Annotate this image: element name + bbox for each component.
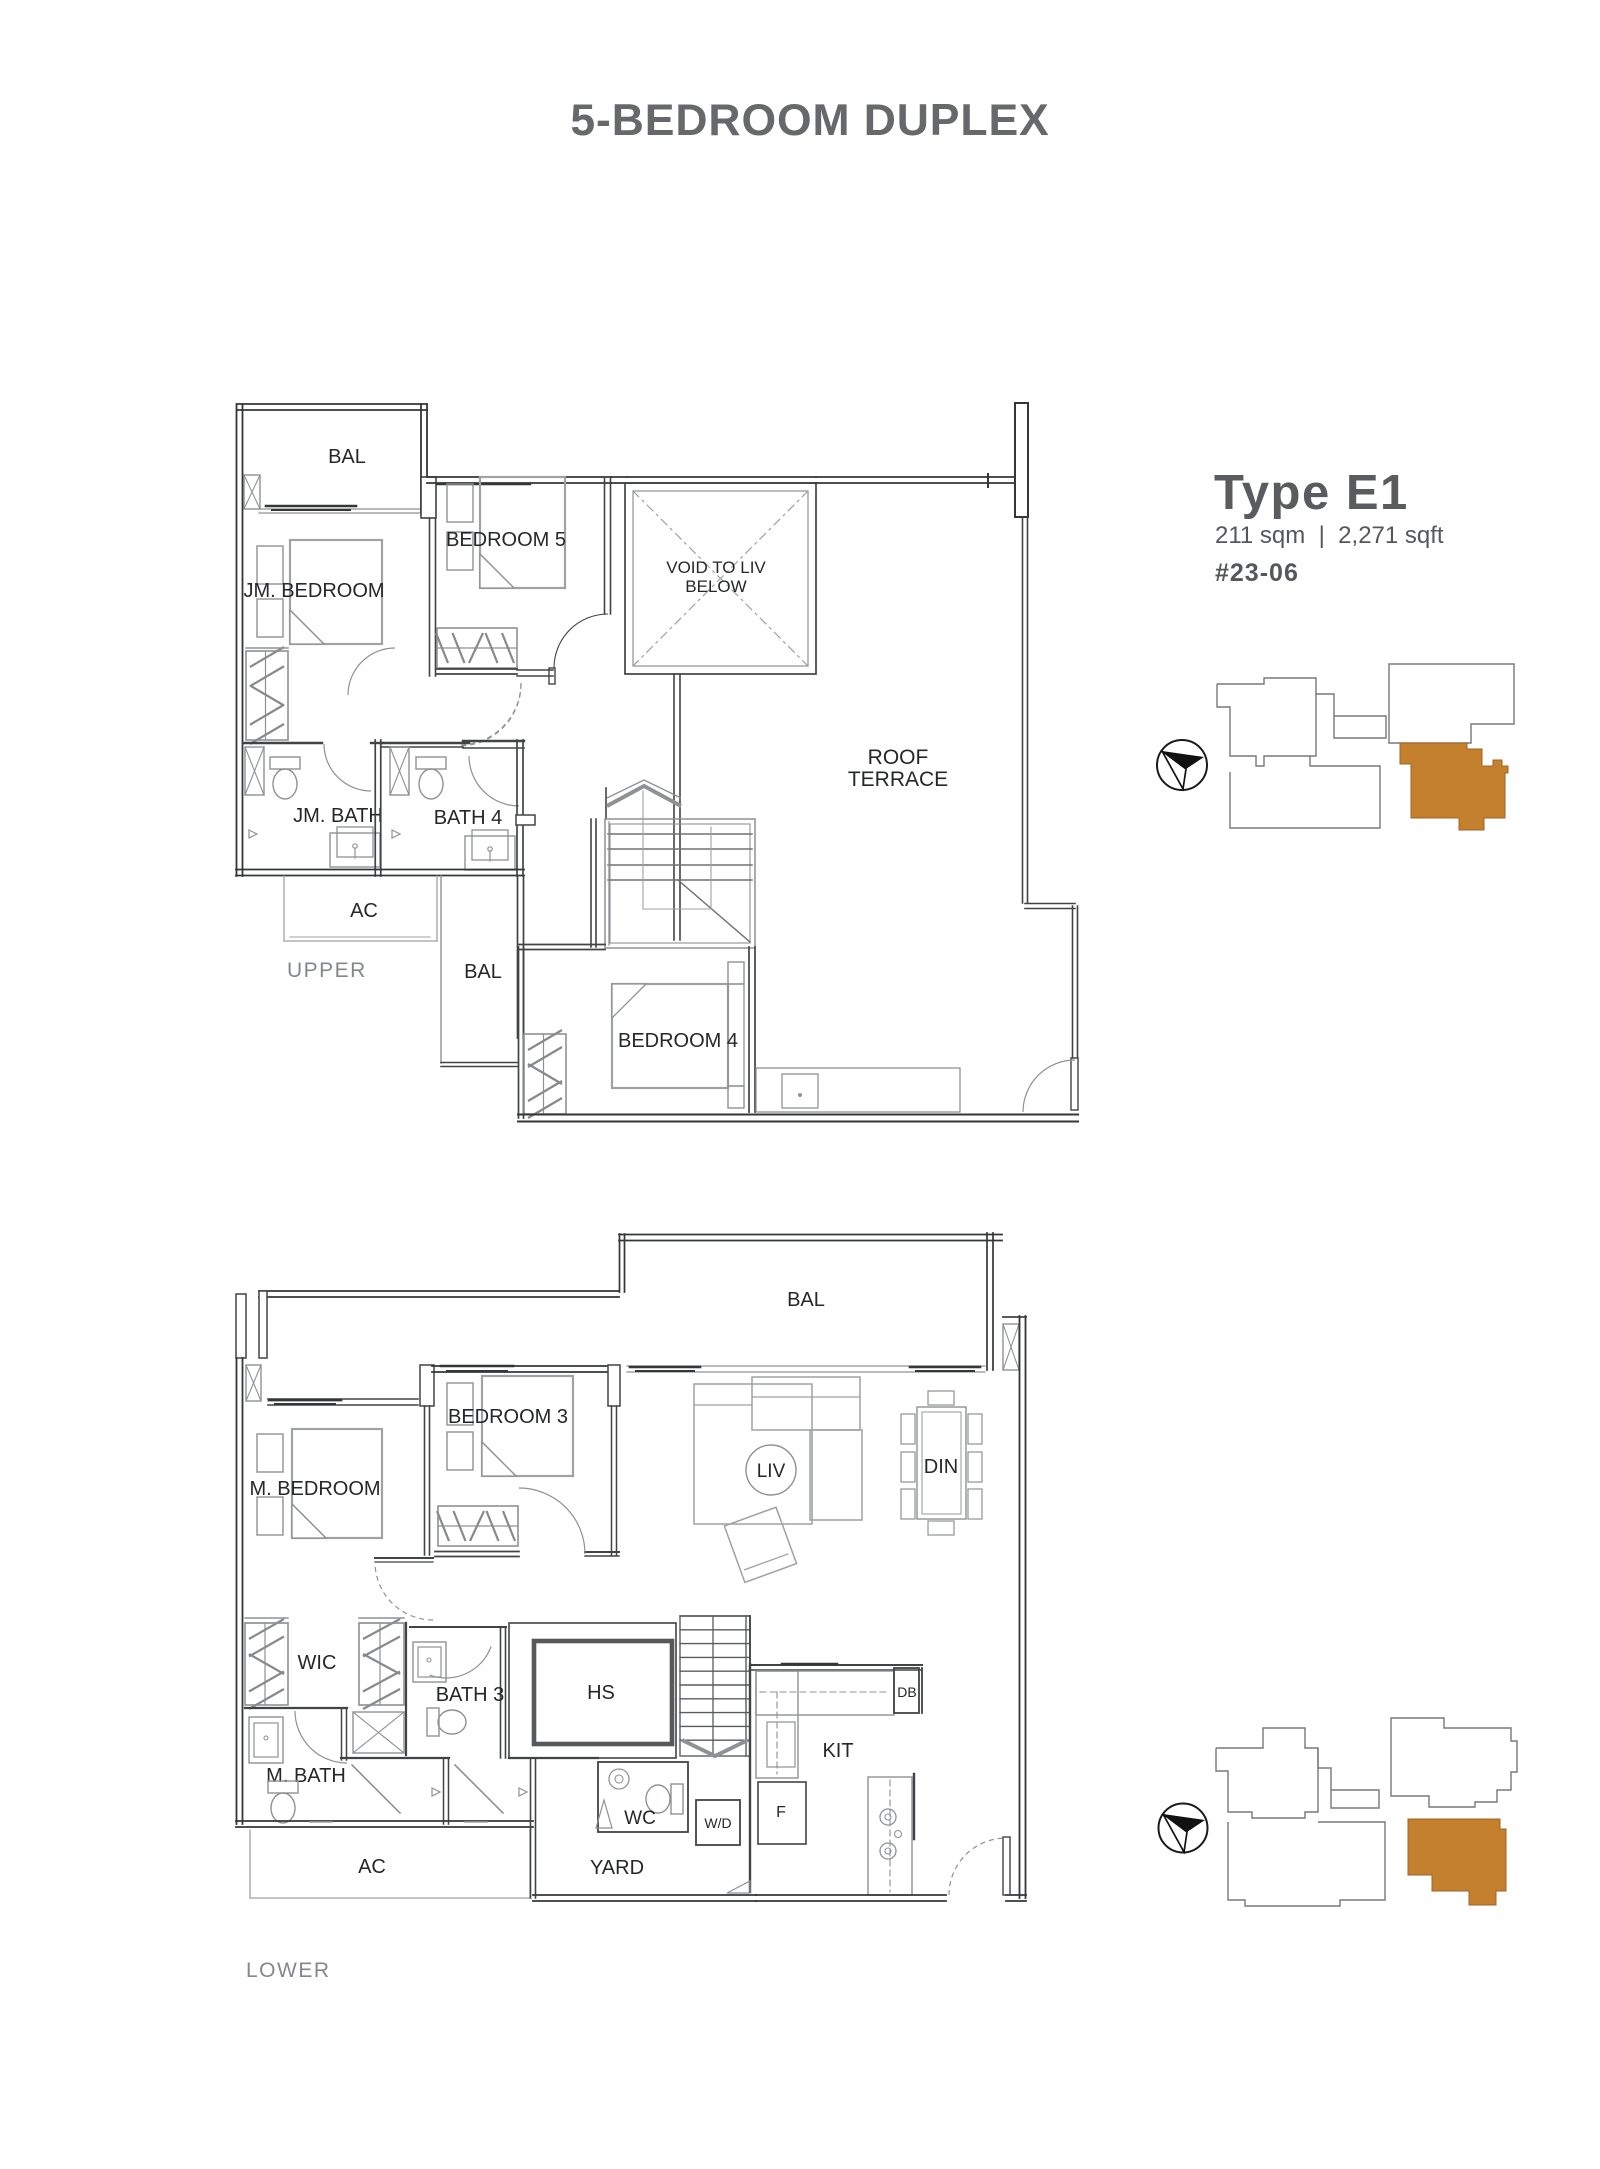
svg-text:LOWER: LOWER — [246, 1959, 331, 1982]
svg-text:M. BEDROOM: M. BEDROOM — [249, 1478, 380, 1500]
svg-text:BEDROOM 3: BEDROOM 3 — [448, 1406, 568, 1428]
svg-text:LIV: LIV — [757, 1461, 786, 1482]
svg-text:DB: DB — [897, 1684, 916, 1700]
svg-text:BAL: BAL — [328, 446, 366, 468]
svg-text:AC: AC — [358, 1856, 386, 1878]
svg-text:BEDROOM 5: BEDROOM 5 — [446, 529, 566, 551]
svg-text:BATH 3: BATH 3 — [436, 1684, 505, 1706]
svg-text:211 sqm | 2,271 sqft: 211 sqm | 2,271 sqft — [1215, 522, 1444, 549]
svg-text:F: F — [776, 1804, 786, 1821]
svg-text:M. BATH: M. BATH — [266, 1765, 346, 1787]
svg-text:KIT: KIT — [822, 1740, 853, 1762]
svg-text:BAL: BAL — [464, 961, 502, 983]
svg-text:BAL: BAL — [787, 1289, 825, 1311]
svg-text:VOID TO LIV: VOID TO LIV — [666, 558, 766, 577]
svg-text:JM. BATH: JM. BATH — [293, 805, 383, 827]
svg-text:WC: WC — [624, 1808, 656, 1829]
svg-text:5-BEDROOM DUPLEX: 5-BEDROOM DUPLEX — [570, 96, 1049, 145]
svg-text:BELOW: BELOW — [685, 577, 746, 596]
svg-text:WIC: WIC — [298, 1652, 337, 1674]
svg-text:ROOF: ROOF — [868, 746, 929, 769]
svg-text:AC: AC — [350, 900, 378, 922]
svg-text:JM. BEDROOM: JM. BEDROOM — [243, 580, 384, 602]
svg-text:UPPER: UPPER — [287, 959, 367, 982]
svg-text:YARD: YARD — [590, 1857, 644, 1879]
svg-text:HS: HS — [587, 1682, 615, 1704]
svg-text:BEDROOM 4: BEDROOM 4 — [618, 1030, 738, 1052]
svg-text:Type E1: Type E1 — [1214, 466, 1409, 520]
svg-text:W/D: W/D — [704, 1815, 731, 1831]
svg-text:#23-06: #23-06 — [1215, 559, 1299, 587]
svg-text:TERRACE: TERRACE — [848, 768, 948, 791]
svg-text:BATH 4: BATH 4 — [434, 807, 503, 829]
svg-text:DIN: DIN — [924, 1456, 958, 1478]
